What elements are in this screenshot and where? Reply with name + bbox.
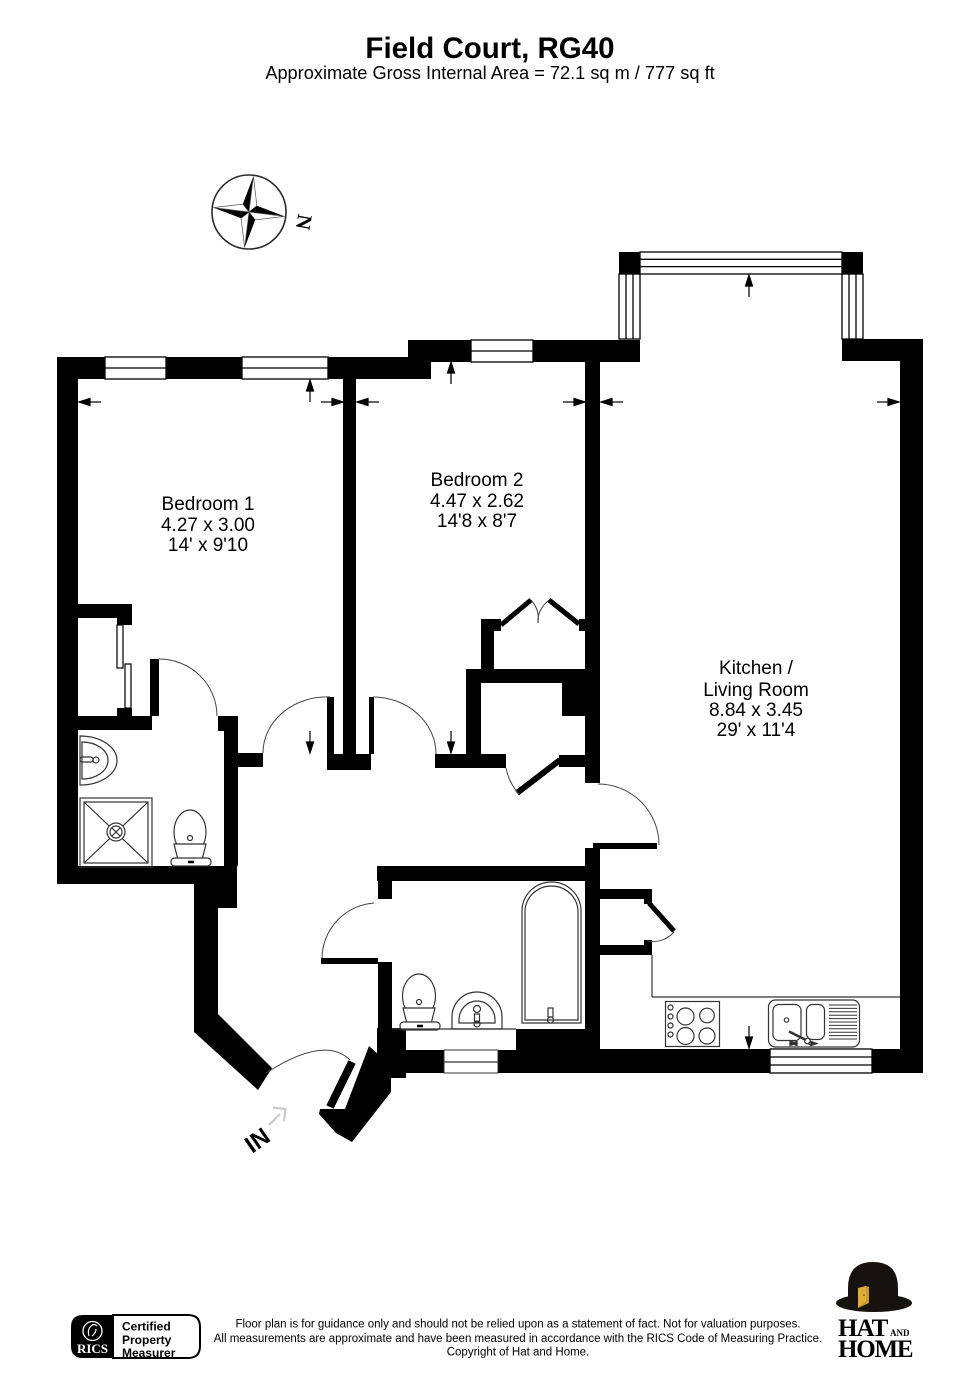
svg-text:Kitchen /: Kitchen / [719, 658, 794, 679]
svg-text:8.84 x 3.45: 8.84 x 3.45 [709, 700, 803, 721]
svg-text:Living Room: Living Room [703, 680, 809, 701]
svg-text:HOME: HOME [838, 1336, 913, 1363]
svg-text:Bedroom 1: Bedroom 1 [162, 494, 255, 515]
svg-text:14' x 9'10: 14' x 9'10 [168, 535, 248, 556]
svg-text:14'8 x 8'7: 14'8 x 8'7 [437, 511, 517, 532]
svg-text:All measurements are approxima: All measurements are approximate and hav… [214, 1333, 823, 1345]
svg-text:4.47 x 2.62: 4.47 x 2.62 [430, 491, 524, 512]
svg-text:Bedroom 2: Bedroom 2 [431, 470, 524, 491]
svg-text:Approximate Gross Internal Are: Approximate Gross Internal Area = 72.1 s… [265, 63, 714, 83]
svg-text:Floor plan is for guidance onl: Floor plan is for guidance only and shou… [235, 1319, 800, 1331]
svg-text:Measurer: Measurer [122, 1346, 176, 1360]
svg-text:RICS: RICS [77, 1341, 108, 1356]
svg-text:Certified: Certified [122, 1320, 171, 1334]
svg-text:Copyright of Hat and Home.: Copyright of Hat and Home. [447, 1347, 590, 1359]
svg-text:4.27 x 3.00: 4.27 x 3.00 [161, 515, 255, 536]
svg-text:Property: Property [122, 1333, 172, 1347]
svg-text:Field Court, RG40: Field Court, RG40 [365, 32, 614, 65]
svg-text:29' x 11'4: 29' x 11'4 [717, 720, 796, 741]
